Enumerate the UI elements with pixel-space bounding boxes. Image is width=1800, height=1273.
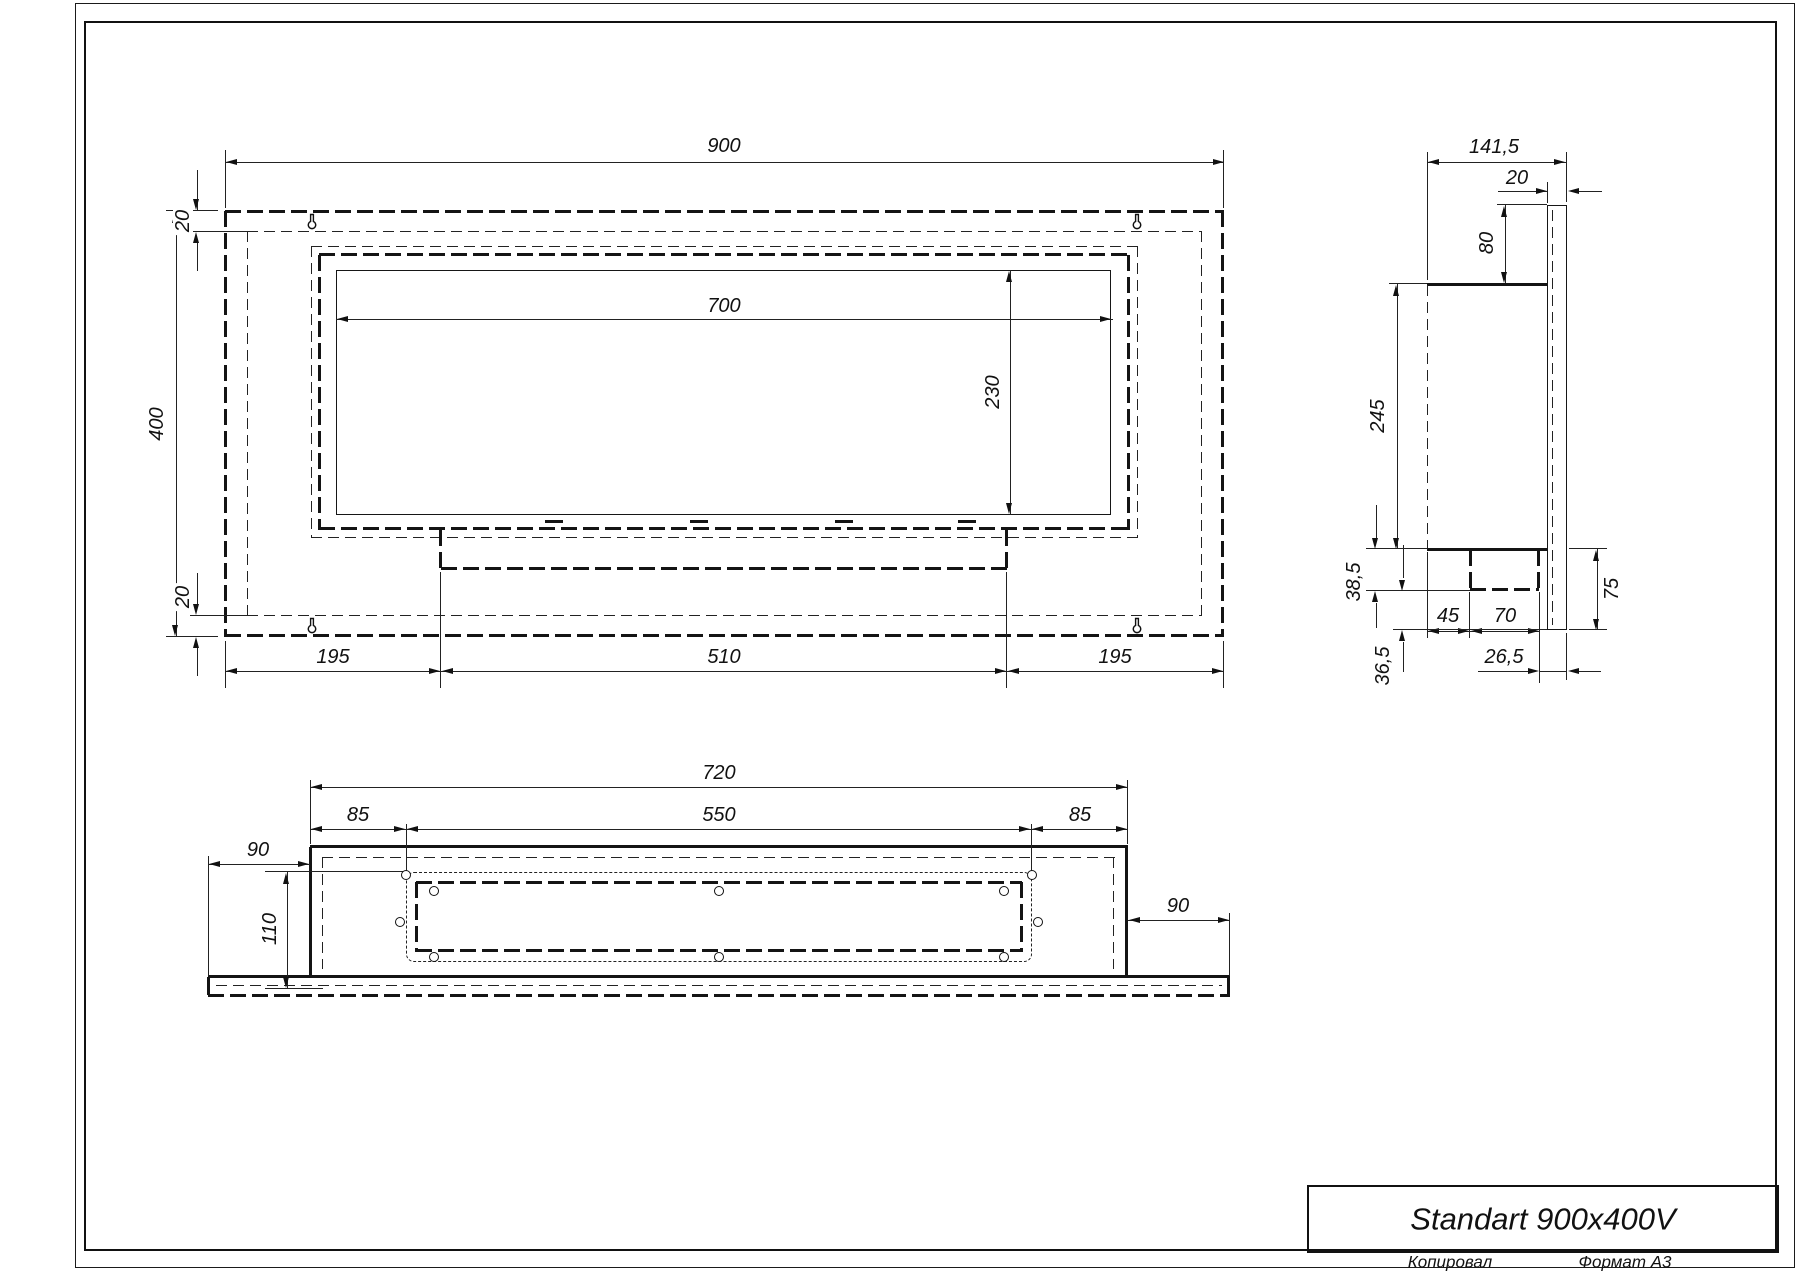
- format-label: Формат А3: [1575, 1254, 1674, 1271]
- mount-hole: [1027, 870, 1037, 880]
- dim-base-right-label: 195: [1095, 647, 1134, 667]
- dimension-line: [225, 162, 1224, 163]
- arrowhead: [1218, 917, 1229, 923]
- arrowhead: [337, 316, 348, 322]
- arrowhead: [1100, 316, 1111, 322]
- hidden-line: [247, 615, 1202, 616]
- arrowhead: [209, 861, 220, 867]
- dim-base-center-label: 510: [704, 647, 743, 667]
- hidden-line: [1470, 588, 1539, 591]
- burner-tab-line: [690, 520, 708, 523]
- dimension-line: [197, 243, 198, 271]
- dimension-line: [310, 787, 1128, 788]
- arrowhead: [1593, 619, 1599, 630]
- keyhole-slot-icon: [306, 213, 318, 231]
- arrowhead: [1393, 285, 1399, 296]
- dim-panel-thickness-label: 20: [1503, 168, 1531, 188]
- burner-tab-line: [958, 520, 976, 523]
- extension-line: [1229, 913, 1230, 976]
- dim-front-offset-top-label: 20: [173, 207, 193, 235]
- dimension-line: [336, 319, 1113, 320]
- dim-seg-left-label: 45: [1434, 606, 1462, 626]
- dim-overhang-right-label: 90: [1164, 896, 1192, 916]
- dim-opening-width-label: 700: [704, 296, 743, 316]
- dimension-line: [197, 648, 198, 676]
- contour-line: [225, 210, 1224, 213]
- arrowhead: [226, 159, 237, 165]
- dimension-line: [1579, 671, 1601, 672]
- contour-line: [224, 211, 227, 637]
- arrowhead: [283, 873, 289, 884]
- extension-line: [1393, 629, 1547, 630]
- hidden-line: [319, 253, 1130, 256]
- dimension-line: [225, 671, 1224, 672]
- dimension-line: [208, 864, 310, 865]
- contour-line: [309, 847, 312, 977]
- arrowhead: [1536, 188, 1547, 194]
- dim-front-offset-bottom-label: 20: [173, 583, 193, 611]
- hidden-line: [1552, 210, 1553, 625]
- burner-tab-line: [835, 520, 853, 523]
- arrowhead: [1019, 826, 1030, 832]
- extension-line: [190, 615, 247, 616]
- hidden-line: [311, 246, 312, 538]
- drawing-title: Standart 900x400V: [1407, 1204, 1678, 1235]
- hidden-line: [247, 231, 248, 616]
- arrowhead: [193, 232, 199, 243]
- arrowhead: [298, 861, 309, 867]
- dim-bottom-offset-label: 36,5: [1373, 644, 1393, 689]
- arrowhead: [1428, 159, 1439, 165]
- hidden-line: [1137, 246, 1138, 538]
- dim-base-depth-label: 110: [260, 910, 280, 948]
- dimension-line: [1376, 603, 1377, 628]
- arrowhead: [1212, 668, 1223, 674]
- keyhole-slot-icon: [1131, 617, 1143, 635]
- hidden-line: [1427, 285, 1428, 550]
- arrowhead: [1032, 826, 1043, 832]
- hidden-line: [1127, 255, 1130, 530]
- contour-line: [1427, 548, 1547, 551]
- arrowhead: [1213, 159, 1224, 165]
- dim-opening-height-label: 230: [983, 372, 1003, 411]
- dim-base-opening-label: 550: [699, 805, 738, 825]
- arrowhead: [1006, 271, 1012, 282]
- hidden-line: [415, 882, 418, 952]
- contour-line: [1227, 977, 1230, 995]
- extension-line: [1569, 548, 1607, 549]
- hidden-line: [322, 857, 323, 969]
- mount-hole: [999, 886, 1009, 896]
- arrowhead: [429, 668, 440, 674]
- arrowhead: [442, 668, 453, 674]
- arrowhead: [172, 625, 178, 636]
- hidden-line: [1020, 882, 1023, 952]
- extension-line: [1539, 592, 1540, 683]
- arrowhead: [1501, 272, 1507, 283]
- dimension-line: [1597, 549, 1598, 630]
- contour-line: [1125, 847, 1128, 977]
- hidden-line: [439, 530, 442, 570]
- drawing-sheet: 900 400 20 20 700 230: [0, 0, 1800, 1273]
- dimension-line: [1478, 671, 1528, 672]
- extension-line: [1427, 152, 1428, 280]
- hidden-line: [311, 246, 1138, 247]
- arrowhead: [1593, 550, 1599, 561]
- keyhole-slot-icon: [306, 617, 318, 635]
- arrowhead: [1116, 784, 1127, 790]
- hidden-line: [247, 231, 1202, 232]
- hidden-line: [416, 881, 1022, 884]
- arrowhead: [193, 637, 199, 648]
- arrowhead: [1006, 503, 1012, 514]
- hidden-line: [311, 537, 1138, 538]
- extension-line: [1427, 552, 1428, 638]
- hidden-line: [1113, 857, 1114, 969]
- mount-hole: [714, 952, 724, 962]
- dimension-line: [1579, 191, 1602, 192]
- mount-hole: [714, 886, 724, 896]
- arrowhead: [1568, 668, 1579, 674]
- dim-side-depth-label: 141,5: [1466, 137, 1522, 157]
- hidden-line: [208, 994, 1230, 997]
- dim-margin-right-label: 85: [1066, 805, 1094, 825]
- arrowhead: [193, 199, 199, 210]
- arrowhead: [1568, 188, 1579, 194]
- contour-line: [1221, 211, 1224, 637]
- arrowhead: [1372, 591, 1378, 602]
- hidden-line: [216, 985, 1222, 986]
- arrowhead: [311, 784, 322, 790]
- dimension-line: [1376, 505, 1377, 538]
- dim-back-offset-label: 26,5: [1482, 647, 1527, 667]
- dimension-line: [1540, 671, 1567, 672]
- dim-front-width-label: 900: [704, 136, 743, 156]
- extension-line: [190, 231, 247, 232]
- mount-hole: [429, 952, 439, 962]
- extension-line: [1223, 641, 1224, 688]
- arrowhead: [311, 826, 322, 832]
- dimension-line: [1397, 284, 1398, 549]
- hidden-line: [318, 255, 321, 530]
- extension-line: [1547, 182, 1548, 203]
- dim-tray-height-label: 38,5: [1344, 560, 1364, 605]
- dimension-line: [1427, 162, 1567, 163]
- arrowhead: [283, 977, 289, 988]
- arrowhead: [1399, 630, 1405, 641]
- dimension-line: [287, 872, 288, 989]
- arrowhead: [226, 668, 237, 674]
- contour-line: [208, 975, 1230, 978]
- arrowhead: [1372, 538, 1378, 549]
- hidden-line: [322, 857, 1116, 858]
- extension-line: [1566, 152, 1567, 202]
- dim-overhang-left-label: 90: [244, 840, 272, 860]
- dimension-line: [310, 829, 1128, 830]
- dim-seg-right-label: 70: [1491, 606, 1519, 626]
- dimension-line: [197, 573, 198, 604]
- mount-hole: [429, 886, 439, 896]
- arrowhead: [1554, 159, 1565, 165]
- arrowhead: [1129, 917, 1140, 923]
- hidden-line: [441, 567, 1007, 570]
- dim-front-height-label: 400: [147, 404, 167, 443]
- dimension-line: [1010, 270, 1011, 515]
- arrowhead: [1008, 668, 1019, 674]
- dim-top-offset-label: 80: [1477, 229, 1497, 257]
- extension-line: [265, 988, 323, 989]
- mount-hole: [999, 952, 1009, 962]
- keyhole-slot-icon: [1131, 213, 1143, 231]
- dimension-line: [1128, 920, 1230, 921]
- contour-line: [207, 977, 210, 995]
- contour-line: [310, 845, 1128, 848]
- dim-box-height-label: 245: [1368, 396, 1388, 435]
- dim-base-left-label: 195: [313, 647, 352, 667]
- mount-hole: [395, 917, 405, 927]
- dimension-line: [1403, 545, 1404, 578]
- extension-line: [1127, 780, 1128, 844]
- extension-line: [1366, 590, 1470, 591]
- arrowhead: [995, 668, 1006, 674]
- arrowhead: [394, 826, 405, 832]
- mount-hole: [1033, 917, 1043, 927]
- arrowhead: [1399, 580, 1405, 591]
- burner-tab-line: [545, 520, 563, 523]
- extension-line: [208, 856, 209, 976]
- dimension-line: [1403, 642, 1404, 672]
- contour-line: [1427, 283, 1547, 286]
- extension-line: [166, 636, 218, 637]
- dim-margin-left-label: 85: [344, 805, 372, 825]
- extension-line: [225, 641, 226, 688]
- dim-body-width-label: 720: [699, 763, 738, 783]
- arrowhead: [407, 826, 418, 832]
- hidden-line: [1201, 231, 1202, 616]
- extension-line: [1569, 629, 1607, 630]
- arrowhead: [1501, 206, 1507, 217]
- hidden-line: [1005, 530, 1008, 570]
- hidden-line: [1469, 550, 1472, 591]
- dim-panel-below-label: 75: [1602, 575, 1622, 603]
- contour-line: [225, 634, 1224, 637]
- hidden-line: [1537, 550, 1540, 591]
- dimension-line: [176, 211, 177, 637]
- arrowhead: [1528, 668, 1539, 674]
- back-panel-outline: [1547, 205, 1567, 630]
- copied-label: Копировал: [1405, 1254, 1496, 1271]
- mount-hole: [401, 870, 411, 880]
- arrowhead: [1116, 826, 1127, 832]
